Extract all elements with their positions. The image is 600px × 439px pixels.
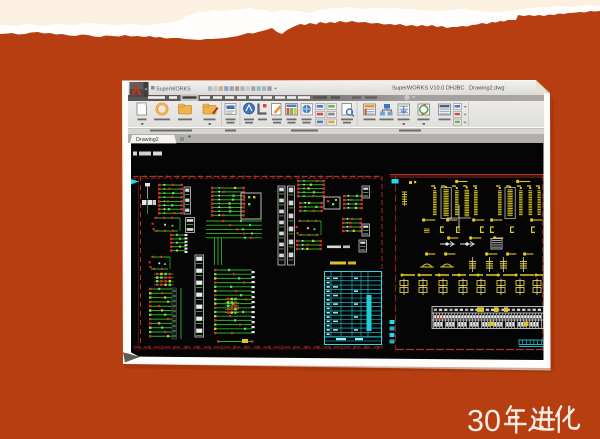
svg-text:30: 30 [467,404,501,438]
